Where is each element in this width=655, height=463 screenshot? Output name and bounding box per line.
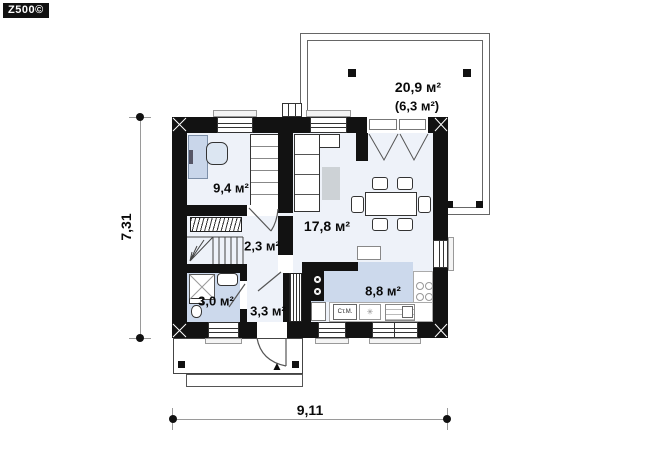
dimension-line-vertical <box>140 117 141 338</box>
window-sill <box>205 338 242 344</box>
dimension-line-horizontal <box>173 419 448 420</box>
rug <box>322 167 340 200</box>
wall-left <box>172 117 187 338</box>
wall-right <box>433 117 448 338</box>
dining-chair <box>372 218 388 231</box>
room-label-hallway: 3,3 м² <box>250 304 286 319</box>
hob-burner <box>416 282 424 290</box>
terrace-door-panel <box>399 119 426 130</box>
washbasin <box>217 273 238 286</box>
dimension-dot <box>136 113 144 121</box>
porch-post <box>292 361 299 368</box>
terrace-door-panel <box>369 119 397 130</box>
dining-chair <box>418 196 431 213</box>
stove-burner <box>314 288 321 295</box>
sideboard <box>357 246 381 260</box>
wall-closet-kitchen <box>302 262 311 322</box>
window-sill <box>448 237 454 271</box>
wall-bathroom-top <box>172 264 247 273</box>
room-label-living: 17,8 м² <box>304 218 350 234</box>
door-opening-entrance <box>257 322 287 338</box>
terrace-post <box>463 69 471 77</box>
terrace-area-label: 20,9 м² <box>395 79 441 95</box>
wall-living-kitchen <box>302 262 358 271</box>
window-kitchen-a <box>318 322 346 338</box>
dimension-dot <box>169 415 177 423</box>
terrace-post <box>348 69 356 77</box>
window-kitchen-b <box>372 322 418 338</box>
sofa-body <box>294 134 320 212</box>
window-sill <box>306 110 351 117</box>
dimension-height-label: 7,31 <box>118 213 134 240</box>
window-bathroom <box>208 322 239 338</box>
chimney-flue <box>288 103 289 117</box>
dining-table <box>365 192 417 216</box>
closet-shelving <box>289 273 302 322</box>
chimney <box>282 103 302 117</box>
kitchen-sink-basin <box>402 306 413 318</box>
door-opening-cabinet <box>247 205 278 216</box>
dimension-dot <box>136 334 144 342</box>
chimney-flue <box>295 103 296 117</box>
room-label-cabinet: 9,4 м² <box>213 181 249 196</box>
dining-chair <box>397 177 413 190</box>
dimension-dot <box>443 415 451 423</box>
window-kitchen-right <box>433 240 448 268</box>
window-divider <box>394 322 395 338</box>
terrace-secondary-area-label: (6,3 м²) <box>395 99 439 114</box>
room-label-stair-hall: 2,3 м² <box>244 239 280 254</box>
z500-logo: Z500© <box>3 3 49 18</box>
radiator <box>190 217 242 232</box>
terrace-post <box>476 201 483 208</box>
window-cabinet <box>217 117 253 133</box>
hob-burner <box>425 293 433 301</box>
door-opening-bathroom <box>240 281 247 309</box>
washing-machine-label: Ст.М. <box>338 309 353 315</box>
hob-burner <box>416 293 424 301</box>
terrace-door-pillar <box>356 133 368 161</box>
window-living <box>310 117 347 133</box>
room-label-bathroom: 3,0 м² <box>198 294 234 309</box>
entrance-arrow-icon: ▲ <box>271 359 283 373</box>
dining-chair <box>372 177 388 190</box>
entrance-steps <box>186 374 303 387</box>
room-label-kitchen: 8,8 м² <box>365 284 401 299</box>
window-sill <box>369 338 421 344</box>
dimension-width-label: 9,11 <box>297 402 323 418</box>
hob-burner <box>425 282 433 290</box>
monitor <box>189 150 193 164</box>
window-sill <box>213 110 257 117</box>
floor-plan: Z500© Ст.М. ✳ <box>0 0 655 463</box>
door-opening-hallway <box>278 255 293 273</box>
window-sill <box>315 338 349 344</box>
office-chair <box>206 142 228 165</box>
dining-chair <box>351 196 364 213</box>
dining-chair <box>397 218 413 231</box>
fridge-icon: ✳ <box>367 308 374 317</box>
small-sink <box>311 302 326 321</box>
porch-post <box>178 361 185 368</box>
wardrobe <box>250 134 280 212</box>
wall-cabinet-living <box>278 117 293 213</box>
stove-burner <box>314 276 321 283</box>
